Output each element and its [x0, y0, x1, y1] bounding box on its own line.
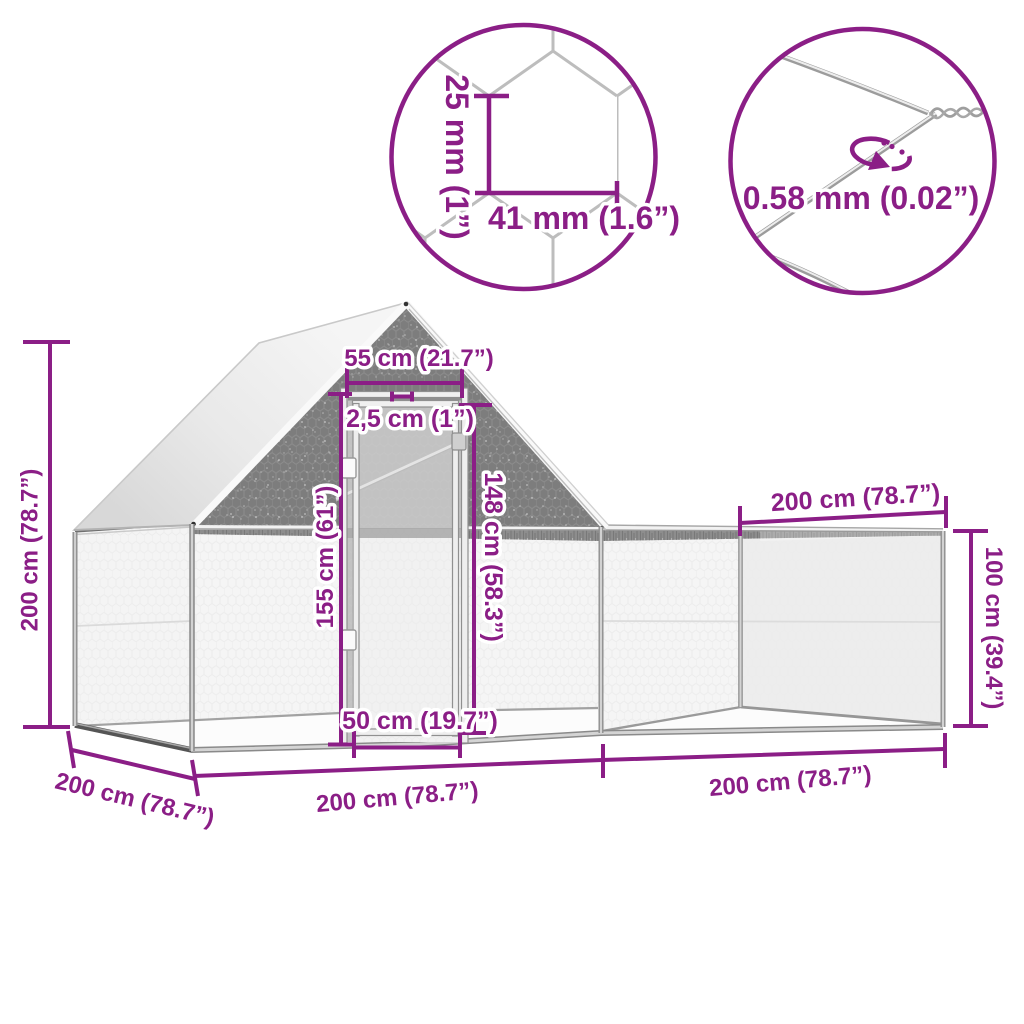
svg-text:100 cm (39.4”): 100 cm (39.4”): [980, 547, 1007, 710]
svg-text:200 cm (78.7”): 200 cm (78.7”): [17, 469, 44, 632]
svg-text:25 mm (1”): 25 mm (1”): [439, 74, 475, 239]
svg-text:148 cm (58.3”): 148 cm (58.3”): [479, 472, 507, 642]
svg-text:0.58 mm (0.02”): 0.58 mm (0.02”): [743, 180, 980, 216]
svg-text:2,5 cm (1”): 2,5 cm (1”): [346, 405, 474, 433]
svg-text:55 cm (21.7”): 55 cm (21.7”): [344, 345, 493, 372]
svg-text:155 cm (61”): 155 cm (61”): [312, 486, 339, 629]
svg-text:41 mm (1.6”): 41 mm (1.6”): [488, 200, 680, 236]
svg-text:50 cm (19.7”): 50 cm (19.7”): [342, 707, 498, 735]
